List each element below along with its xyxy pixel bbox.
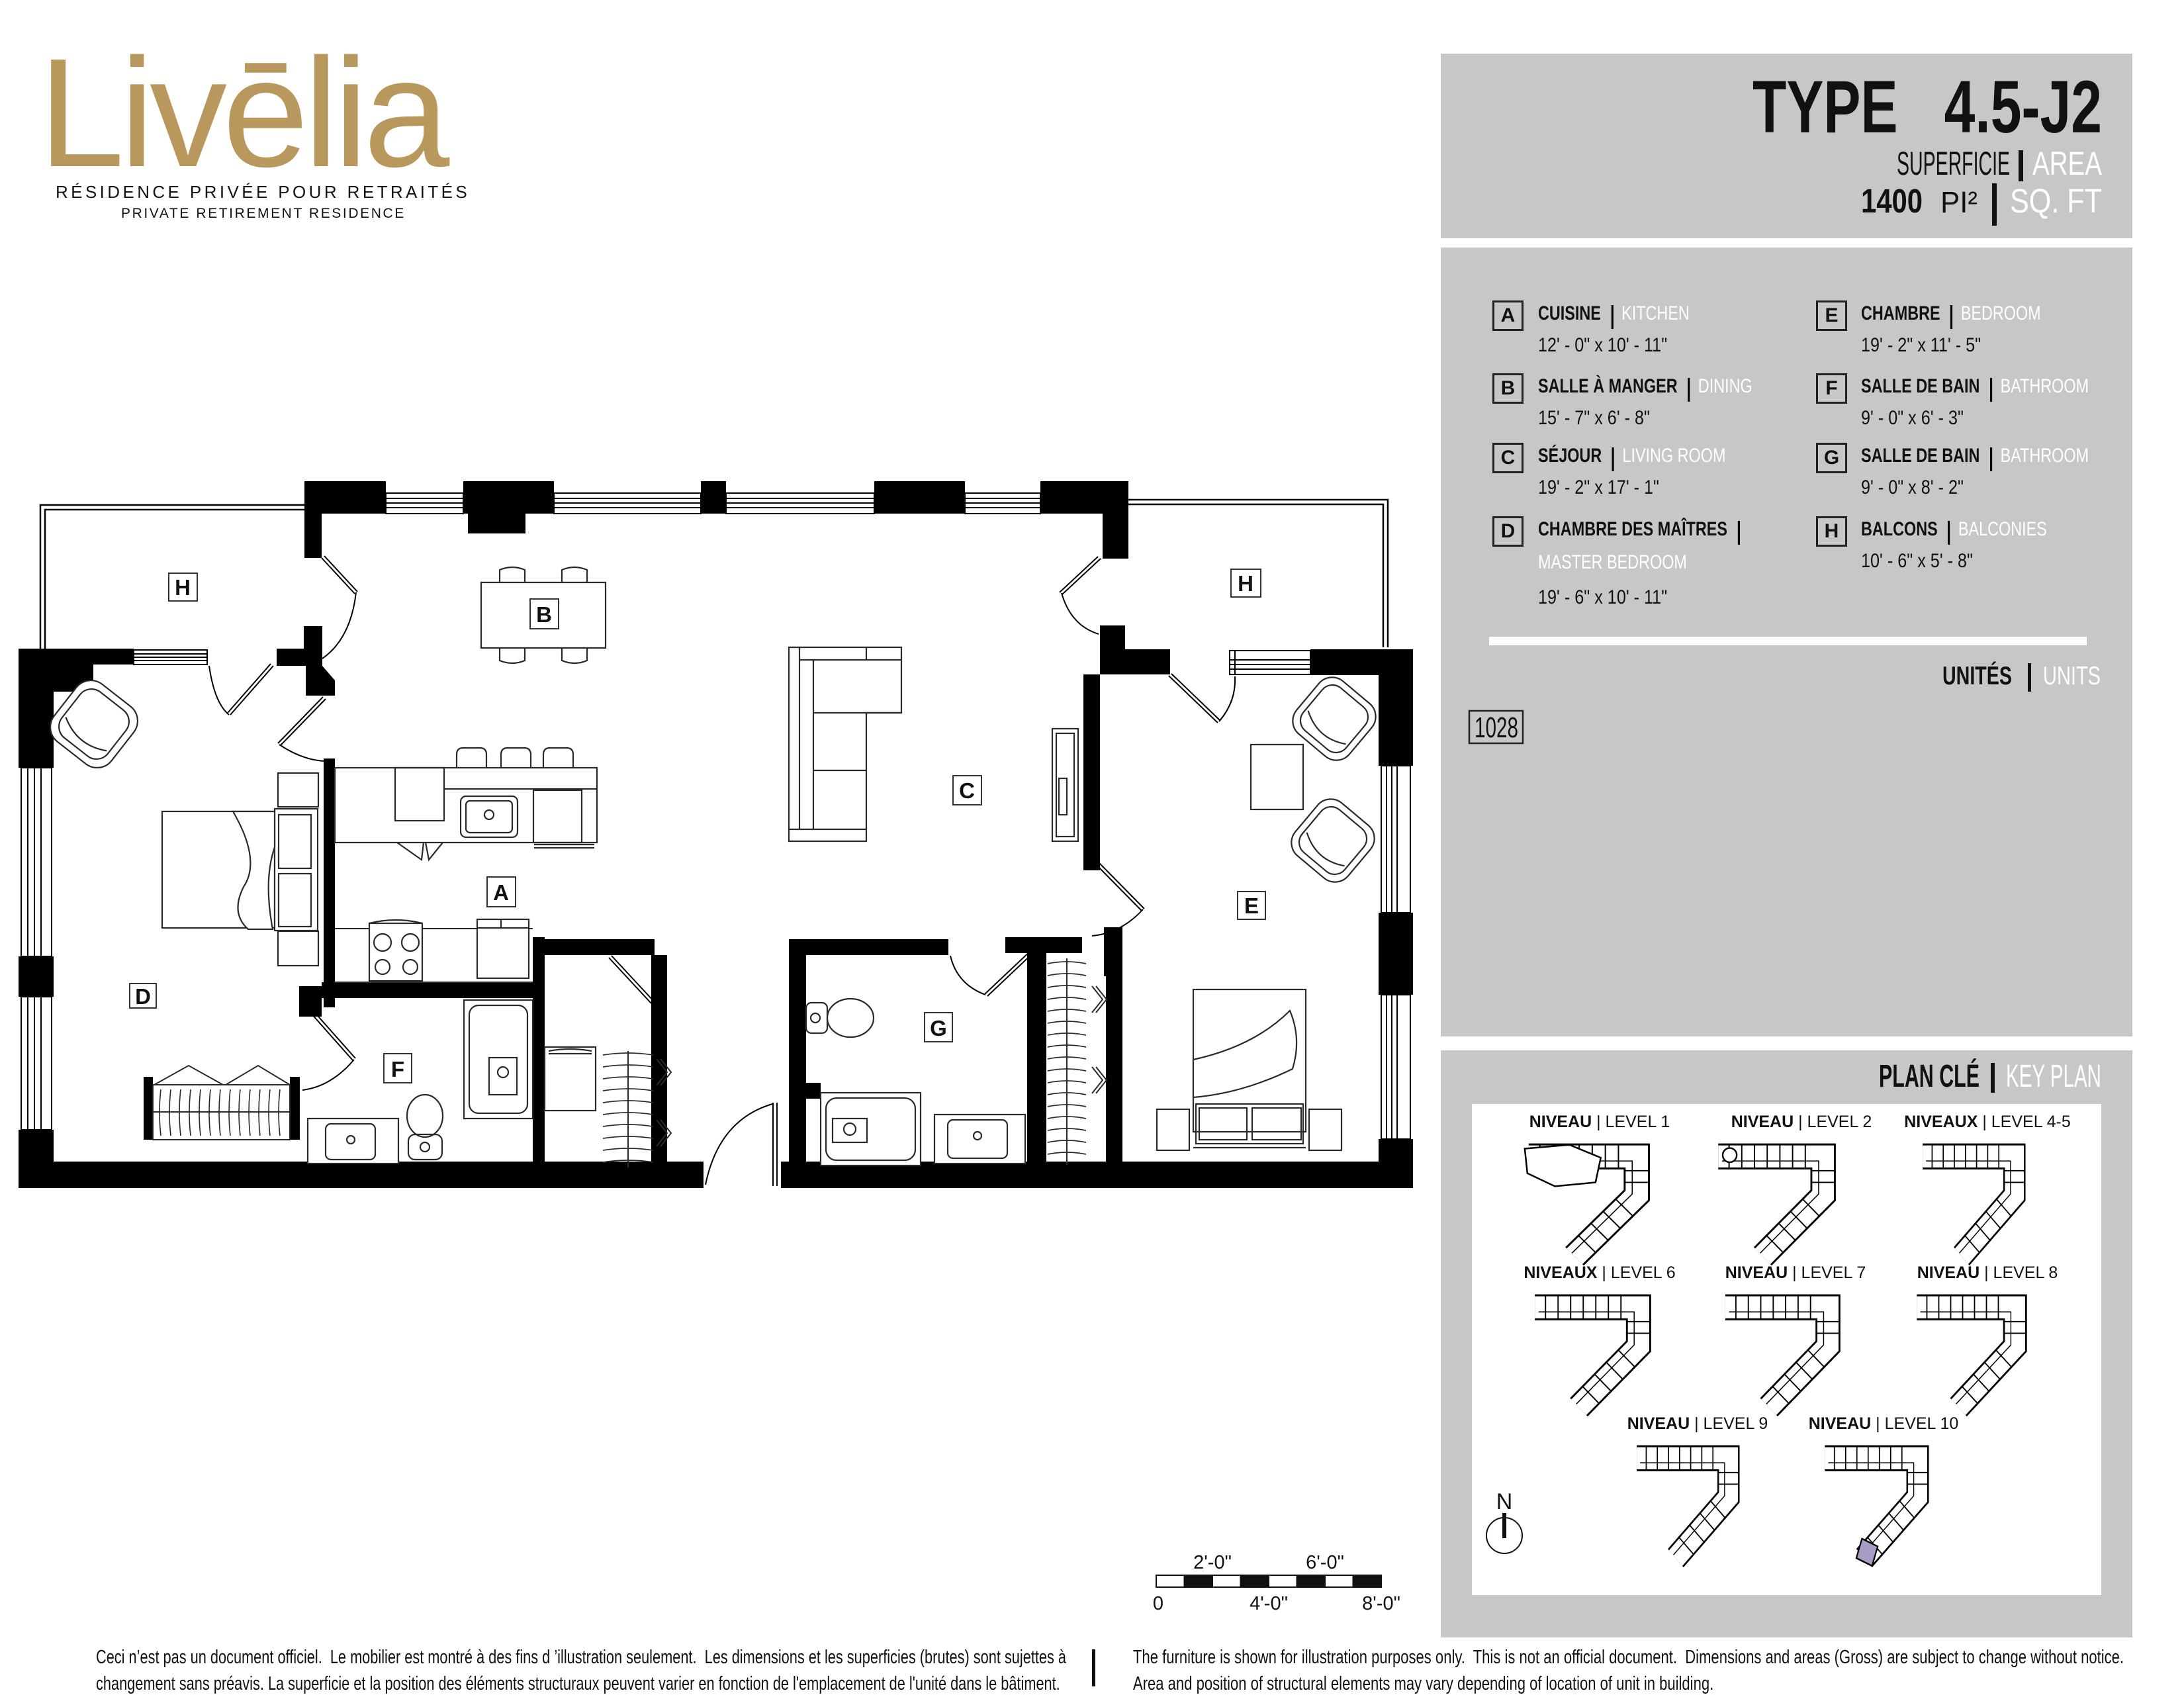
svg-text:UNITS: UNITS <box>2043 662 2101 690</box>
svg-text:A: A <box>493 880 509 905</box>
svg-text:4'-0": 4'-0" <box>1250 1593 1288 1614</box>
svg-text:NIVEAU | LEVEL 2: NIVEAU | LEVEL 2 <box>1731 1113 1872 1131</box>
svg-text:NIVEAU | LEVEL 9: NIVEAU | LEVEL 9 <box>1627 1414 1768 1433</box>
svg-text:NIVEAUX | LEVEL 4-5: NIVEAUX | LEVEL 4-5 <box>1904 1113 2071 1131</box>
svg-text:E: E <box>1244 894 1259 918</box>
svg-text:PLAN CLÉ: PLAN CLÉ <box>1879 1058 1979 1094</box>
svg-text:NIVEAU | LEVEL 10: NIVEAU | LEVEL 10 <box>1809 1414 1959 1433</box>
svg-text:NIVEAU | LEVEL 1: NIVEAU | LEVEL 1 <box>1529 1113 1670 1131</box>
svg-text:6'-0": 6'-0" <box>1306 1552 1344 1573</box>
svg-text:KEY PLAN: KEY PLAN <box>2006 1059 2101 1094</box>
svg-text:H: H <box>1238 571 1253 596</box>
svg-text:F: F <box>391 1057 404 1081</box>
svg-text:1400: 1400 <box>1861 182 1923 220</box>
svg-text:C: C <box>959 778 975 803</box>
svg-text:G: G <box>930 1016 947 1040</box>
svg-text:UNITÉS: UNITÉS <box>1942 661 2012 690</box>
svg-text:TYPE 4.5-J2: TYPE 4.5-J2 <box>1752 66 2102 148</box>
svg-text:H: H <box>175 575 191 600</box>
svg-text:NIVEAU | LEVEL 8: NIVEAU | LEVEL 8 <box>1917 1263 2058 1282</box>
svg-text:0: 0 <box>1153 1593 1163 1614</box>
svg-text:1028: 1028 <box>1475 711 1518 744</box>
svg-text:SQ. FT: SQ. FT <box>2010 182 2102 220</box>
svg-text:NIVEAUX | LEVEL 6: NIVEAUX | LEVEL 6 <box>1524 1263 1675 1282</box>
svg-text:B: B <box>536 602 552 627</box>
svg-text:D: D <box>135 984 151 1009</box>
svg-text:8'-0": 8'-0" <box>1362 1593 1400 1614</box>
svg-text:NIVEAU | LEVEL 7: NIVEAU | LEVEL 7 <box>1725 1263 1866 1282</box>
svg-text:SUPERFICIE: SUPERFICIE <box>1897 145 2010 182</box>
svg-text:2'-0": 2'-0" <box>1193 1552 1232 1573</box>
svg-text:PI²: PI² <box>1940 185 1978 219</box>
svg-text:N: N <box>1496 1489 1513 1514</box>
svg-text:AREA: AREA <box>2032 145 2102 182</box>
